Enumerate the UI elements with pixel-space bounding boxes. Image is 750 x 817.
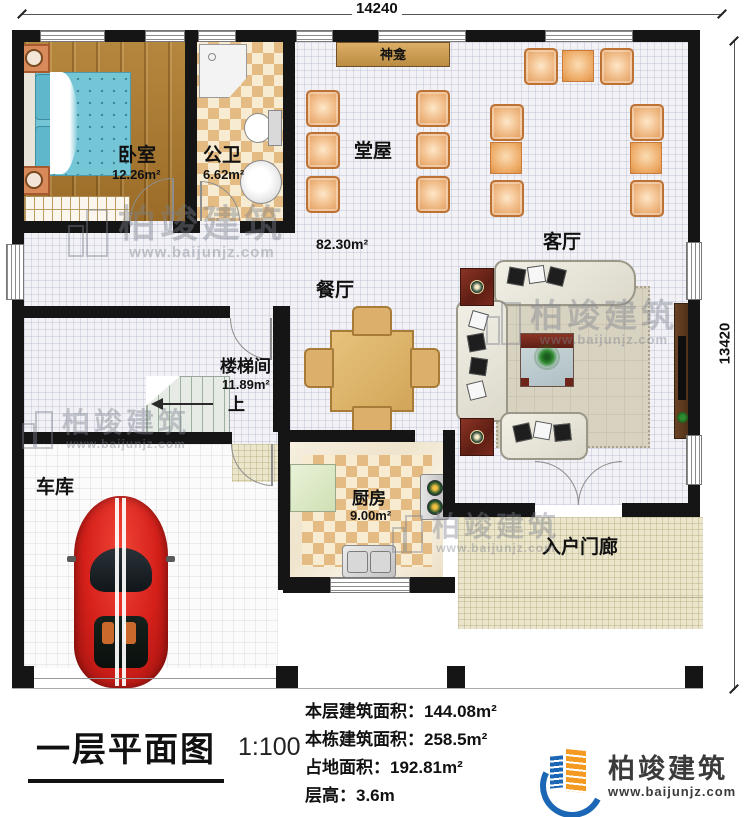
wall-bathroom-south [240,221,295,233]
column-garage-right [276,666,298,688]
window-right-2 [686,435,702,485]
dim-width-label: 14240 [352,0,402,17]
tv-icon [678,336,686,400]
porch-floor [458,517,703,629]
window-kitchen-south [330,577,410,593]
brand-logo: 柏竣建筑 www.baijunjz.com [540,748,736,806]
bed [20,70,130,176]
floor-plan-canvas: 神龛 [0,0,750,817]
wall-porch-north-2 [622,503,700,517]
window-top-3 [198,30,236,42]
dim-line-right [734,40,735,690]
wall-stair-garage-2 [210,432,232,444]
dining-chair [304,348,334,388]
burner-icon [427,480,443,496]
stat-storey-height: 层高：3.6m [305,782,497,810]
plan-scale: 1:100 [238,733,301,762]
hall-chair [306,132,340,169]
shrine: 神龛 [336,42,450,67]
hall-chair [306,90,340,127]
column-porch-left [447,666,465,688]
bedroom-door-leaf [172,178,174,221]
stat-building-area: 本栋建筑面积：258.5m² [305,726,497,754]
bathroom-door-leaf [200,181,202,221]
window-right-1 [686,242,702,300]
hall-chair [416,176,450,213]
shower-drain-icon [208,53,216,61]
hall-chair [306,176,340,213]
bathroom-label: 公卫 [203,146,241,166]
column-porch-right [685,666,703,688]
hall-chair [490,104,524,141]
wall-right-upper [688,42,700,242]
wall-bedroom-south-2 [173,221,200,233]
wall-bathroom-hall [283,42,295,221]
burner-icon [427,499,443,515]
fridge [290,464,336,512]
side-table [460,268,494,306]
lamp-icon [25,49,43,67]
bathroom-area: 6.62m² [203,168,244,182]
car-mirror [166,556,175,562]
kitchen-sink [342,545,396,578]
hall-chair [416,132,450,169]
stat-floor-area: 本层建筑面积：144.08m² [305,698,497,726]
hall-chair [600,48,634,85]
shrine-label: 神龛 [380,48,406,62]
garage-door-line [34,678,276,679]
toilet-tank [268,110,282,146]
kitchen-door-leaf [271,444,273,486]
hall-tea-table [630,142,662,174]
dim-height-label: 13420 [716,319,733,369]
kitchen-area: 9.00m² [350,509,391,523]
window-top-5 [378,30,466,42]
stair-direction-arrow-icon [151,398,163,410]
wall-left-upper [12,42,24,244]
lamp-icon [25,171,43,189]
living-label: 客厅 [543,233,581,253]
stair-direction-line [161,403,213,405]
coffee-table-corner [565,378,573,386]
brand-url: www.baijunjz.com [608,784,736,799]
window-top-6 [545,30,633,42]
plant-icon [677,412,688,423]
logo-building-orange [566,749,586,793]
window-top-4 [296,30,333,42]
logo-building-blue [550,755,563,788]
plan-title: 一层平面图 [28,722,224,783]
sofa-cushion [467,333,487,353]
porch-step-line [458,597,703,598]
window-top-2 [145,30,185,42]
car [74,496,168,688]
dining-chair [410,348,440,388]
wall-right-mid [688,300,700,435]
car-engine-bay [94,616,148,668]
wall-stair-east [273,306,290,432]
coffee-table [520,333,574,387]
wall-stair-garage-1 [12,432,210,444]
sink-basin-left [347,551,368,573]
bedroom-label: 卧室 [118,146,156,166]
brand-logo-icon [540,748,598,806]
garage-label: 车库 [36,478,74,498]
car-stripe [122,498,126,686]
hall-chair [630,104,664,141]
brand-name: 柏竣建筑 [608,755,736,785]
ground-line [12,688,703,689]
sofa-cushion [553,423,572,442]
window-left [6,244,24,300]
sink-basin [240,160,282,204]
plan-stats: 本层建筑面积：144.08m² 本栋建筑面积：258.5m² 占地面积：192.… [305,698,497,810]
wall-kitchen-south-1 [283,577,330,593]
wall-kitchen-north [290,430,415,442]
hall-chair [490,180,524,217]
wall-bedroom-south-1 [12,221,130,233]
stat-footprint-area: 占地面积：192.81m² [305,754,497,782]
wall-porch-north-1 [443,503,535,517]
wardrobe [24,196,130,223]
hall-chair [630,180,664,217]
dining-table [330,330,414,412]
column-garage-left [12,666,34,688]
sofa-cushion [527,265,546,284]
porch-label: 入户门廊 [542,538,618,558]
hall-label: 堂屋 [354,142,392,162]
bedroom-area: 12.26m² [112,168,160,182]
side-table [460,418,494,456]
coffee-table-corner [521,378,529,386]
hall-chair [416,90,450,127]
wall-dining-stair [12,306,230,318]
wall-left-lower [12,300,24,668]
hall-chair [524,48,558,85]
stairwell-area: 11.89m² [222,378,270,392]
wall-garage-east [278,432,290,590]
plant-icon [536,346,558,368]
stairwell-door-leaf [270,318,272,360]
sink-basin-right [370,551,391,573]
wall-kitchen-south-2 [410,577,455,593]
car-stripe [115,498,119,686]
car-engine-detail [102,622,114,644]
sofa-cushion [507,267,527,287]
dining-label: 餐厅 [316,281,354,301]
stairwell-up-label: 上 [228,396,245,414]
sofa-cushion [469,357,488,376]
hall-tea-table [562,50,594,82]
sofa-cushion [512,422,532,442]
wall-bedroom-bathroom [185,42,197,221]
stairs [146,376,230,434]
hall-area: 82.30m² [316,237,368,252]
hall-tea-table [490,142,522,174]
stairwell-label: 楼梯间 [220,358,271,376]
car-mirror [67,556,76,562]
wall-kitchen-east [443,430,455,508]
window-top-1 [40,30,105,42]
car-windshield [90,548,152,592]
dining-chair [352,306,392,336]
kitchen-label: 厨房 [352,490,386,508]
sofa-cushion [533,421,553,441]
